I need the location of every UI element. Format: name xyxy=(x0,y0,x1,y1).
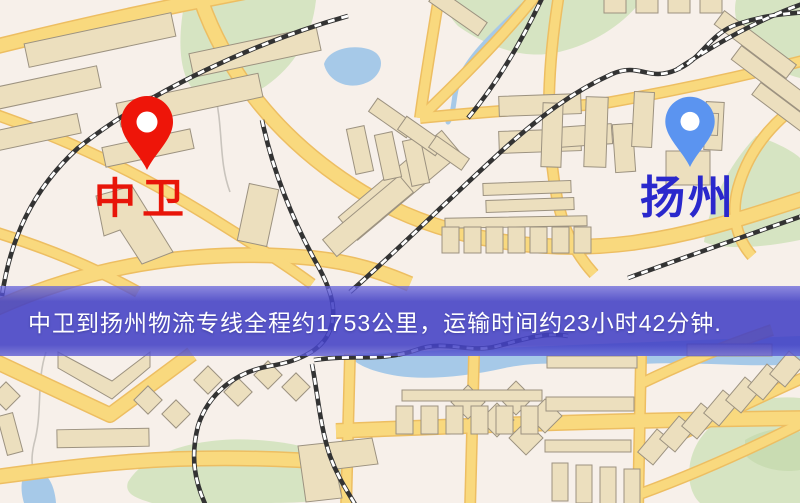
map-screenshot: 中卫 扬州 中卫到扬州物流专线全程约1753公里，运输时间约23小时42分钟. xyxy=(0,0,800,503)
banner-text: 中卫到扬州物流专线全程约1753公里，运输时间约23小时42分钟. xyxy=(0,304,722,338)
destination-label: 扬州 xyxy=(640,175,736,220)
origin-label: 中卫 xyxy=(94,178,190,220)
info-banner: 中卫到扬州物流专线全程约1753公里，运输时间约23小时42分钟. xyxy=(0,286,800,356)
map-canvas xyxy=(0,0,800,503)
